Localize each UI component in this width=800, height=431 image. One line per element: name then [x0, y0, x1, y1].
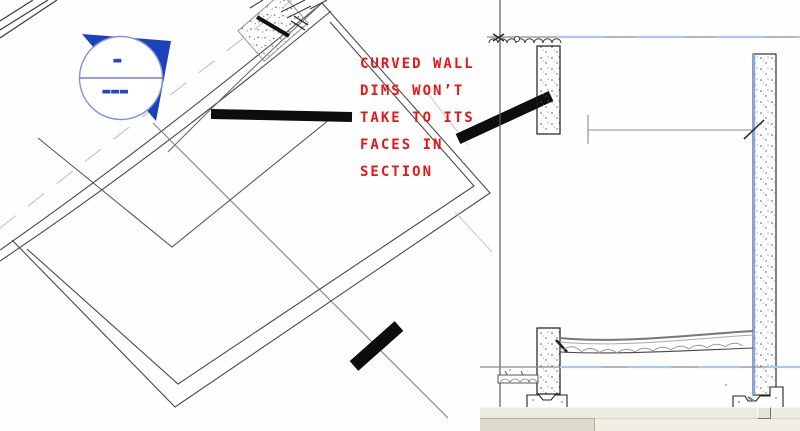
markup-text-line: CURVED WALL [360, 51, 475, 78]
annotation-bar-plan-wall [211, 114, 352, 117]
footing-snap-mark [748, 397, 754, 401]
floor-slab[interactable] [556, 331, 753, 353]
revit-drawing-area: CURVED WALL DIMS WON’T TAKE TO ITS FACES… [0, 0, 800, 431]
wall-footings[interactable] [527, 387, 783, 408]
section-wall-left-lower[interactable] [537, 328, 560, 394]
markup-text-line: SECTION [360, 159, 475, 186]
level-line-upper[interactable] [487, 34, 800, 41]
section-wall-right[interactable] [753, 54, 776, 395]
markup-text-line: DIMS WON’T [360, 78, 475, 105]
dimension-line[interactable] [588, 115, 764, 144]
markup-text-note[interactable]: CURVED WALL DIMS WON’T TAKE TO ITS FACES… [360, 51, 475, 186]
wall-junction [238, 0, 327, 61]
scrollbar-grip-button[interactable] [757, 407, 771, 419]
annotation-bar-room [354, 326, 399, 366]
horizontal-scrollbar-track[interactable] [595, 418, 800, 431]
plan-corner-lines [0, 0, 57, 38]
ledge-slab [498, 371, 538, 383]
markup-text-line: FACES IN [360, 132, 475, 159]
section-wall-left-upper[interactable] [537, 46, 560, 134]
break-line-loop [514, 36, 519, 41]
horizontal-scrollbar-thumb[interactable] [480, 418, 595, 431]
section-head-bottom-label: --- [101, 78, 127, 104]
markup-text-line: TAKE TO ITS [360, 105, 475, 132]
view-bottom-status-strip [480, 407, 800, 418]
section-head-top-label: - [112, 47, 123, 73]
